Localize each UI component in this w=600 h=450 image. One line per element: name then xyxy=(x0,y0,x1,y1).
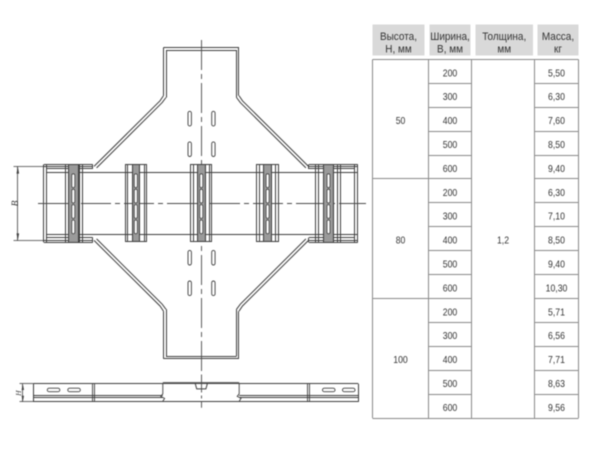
svg-text:5,71: 5,71 xyxy=(548,307,565,318)
svg-text:Толщина,: Толщина, xyxy=(482,31,526,43)
svg-text:50: 50 xyxy=(396,116,406,127)
svg-text:600: 600 xyxy=(443,403,458,414)
svg-text:8,50: 8,50 xyxy=(548,236,565,247)
svg-text:9,40: 9,40 xyxy=(548,164,565,175)
svg-text:600: 600 xyxy=(443,164,458,175)
svg-text:Масса,: Масса, xyxy=(542,31,574,43)
svg-text:Высота,: Высота, xyxy=(380,31,417,43)
svg-text:500: 500 xyxy=(443,379,458,390)
svg-text:мм: мм xyxy=(497,43,511,55)
svg-text:400: 400 xyxy=(443,236,458,247)
svg-text:6,56: 6,56 xyxy=(548,331,565,342)
svg-text:80: 80 xyxy=(396,236,406,247)
svg-text:5,50: 5,50 xyxy=(548,68,565,79)
svg-text:9,40: 9,40 xyxy=(548,259,565,270)
svg-text:600: 600 xyxy=(443,283,458,294)
svg-text:6,30: 6,30 xyxy=(548,92,565,103)
svg-text:400: 400 xyxy=(443,116,458,127)
svg-text:200: 200 xyxy=(443,68,458,79)
svg-text:8,50: 8,50 xyxy=(548,140,565,151)
svg-text:В, мм: В, мм xyxy=(437,43,463,55)
svg-text:200: 200 xyxy=(443,307,458,318)
svg-text:300: 300 xyxy=(443,92,458,103)
svg-text:200: 200 xyxy=(443,188,458,199)
svg-text:8,63: 8,63 xyxy=(548,379,565,390)
svg-text:В: В xyxy=(11,200,21,206)
svg-text:7,71: 7,71 xyxy=(548,355,565,366)
svg-text:10,30: 10,30 xyxy=(546,283,568,294)
svg-text:300: 300 xyxy=(443,212,458,223)
svg-text:Н, мм: Н, мм xyxy=(385,43,411,55)
svg-text:7,10: 7,10 xyxy=(548,212,565,223)
svg-text:7,60: 7,60 xyxy=(548,116,565,127)
svg-text:400: 400 xyxy=(443,355,458,366)
svg-text:300: 300 xyxy=(443,331,458,342)
svg-text:Н: Н xyxy=(14,390,23,397)
svg-text:Ширина,: Ширина, xyxy=(430,31,470,43)
svg-text:1,2: 1,2 xyxy=(497,236,509,247)
svg-text:кг: кг xyxy=(554,43,562,55)
svg-text:9,56: 9,56 xyxy=(548,403,565,414)
svg-text:500: 500 xyxy=(443,259,458,270)
svg-text:6,30: 6,30 xyxy=(548,188,565,199)
svg-text:500: 500 xyxy=(443,140,458,151)
svg-text:100: 100 xyxy=(393,355,408,366)
